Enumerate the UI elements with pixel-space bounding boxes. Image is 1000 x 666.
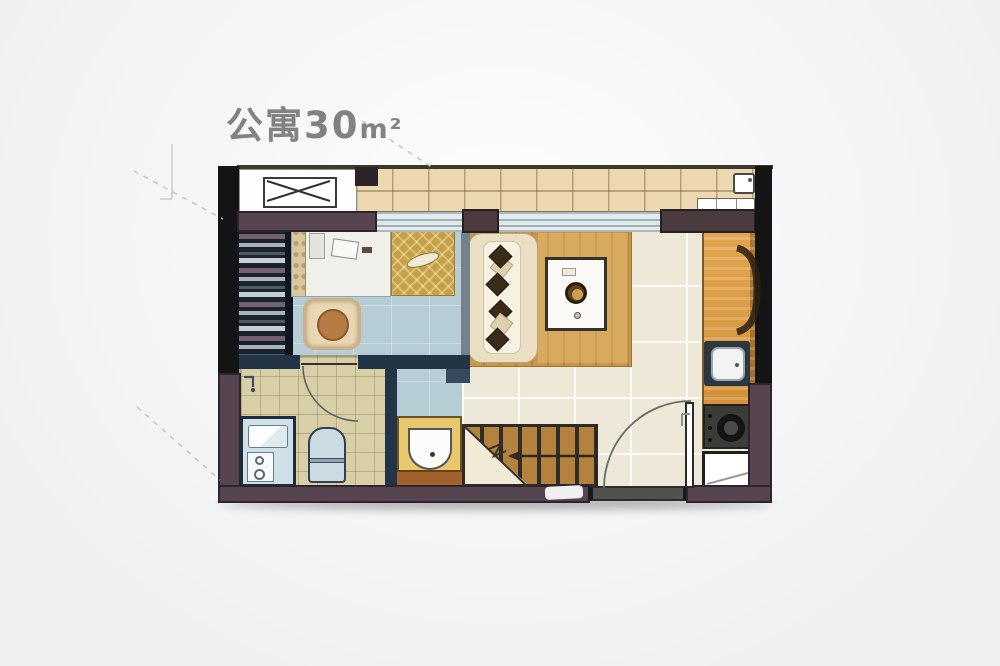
toilet-seat-line bbox=[310, 458, 344, 463]
vanity-basin bbox=[408, 428, 452, 470]
plate-food bbox=[572, 289, 583, 300]
rug-leaf-ornament bbox=[405, 249, 441, 271]
sofa bbox=[468, 233, 538, 363]
stove-knob bbox=[708, 438, 712, 442]
basin-drain bbox=[430, 452, 435, 457]
left-exterior-wall-lower bbox=[218, 373, 241, 503]
right-exterior-wall-upper bbox=[755, 166, 772, 385]
ac-unit-box bbox=[263, 177, 337, 208]
stove-knob bbox=[708, 426, 712, 430]
area-unit-label: m² bbox=[360, 114, 404, 145]
projection-dash-bottom-left bbox=[137, 407, 220, 480]
bed-deco-item bbox=[362, 247, 372, 253]
wardrobe bbox=[239, 224, 293, 362]
coffee-table-cup bbox=[574, 312, 581, 319]
entry-door-leaf bbox=[685, 402, 694, 488]
bottom-wall-left bbox=[218, 485, 590, 503]
cabinet-knob-panel bbox=[247, 452, 274, 482]
ac-platform-niche bbox=[239, 169, 357, 213]
kitchen-sink bbox=[711, 347, 745, 381]
coffee-table-plate bbox=[565, 282, 587, 304]
vanity-counter bbox=[397, 416, 462, 487]
sink-drain bbox=[735, 363, 739, 367]
bedroom-living-divider-wall bbox=[461, 229, 470, 369]
armchair bbox=[303, 298, 361, 350]
cabinet-knob bbox=[255, 456, 264, 465]
projection-dash-top-left bbox=[134, 171, 223, 219]
kitchen-stove bbox=[703, 404, 750, 449]
bed bbox=[291, 226, 391, 297]
bedroom-top-wall bbox=[237, 211, 377, 232]
appliance-knob bbox=[748, 178, 752, 182]
page-title: 公寓30m² bbox=[226, 106, 403, 147]
bed-tray bbox=[331, 238, 359, 259]
stove-knob bbox=[708, 414, 712, 418]
bathroom-cabinet-unit bbox=[240, 416, 296, 487]
bathroom-wall-step bbox=[446, 369, 470, 383]
coffee-table bbox=[545, 257, 607, 331]
bathroom-wall-left bbox=[239, 355, 300, 369]
bathroom-wall-side bbox=[385, 369, 397, 488]
coffee-table-book bbox=[562, 268, 576, 276]
cabinet-sink-top bbox=[248, 425, 288, 448]
bathroom-wall-right bbox=[358, 355, 470, 369]
window-mullion-block bbox=[462, 209, 499, 233]
left-exterior-wall-upper bbox=[218, 166, 239, 375]
toilet bbox=[308, 427, 346, 483]
living-window-band bbox=[377, 212, 662, 232]
bed-headboard bbox=[292, 227, 306, 296]
armchair-cushion bbox=[317, 309, 349, 341]
gold-patterned-rug bbox=[391, 227, 455, 296]
entry-threshold bbox=[588, 486, 688, 501]
balcony-appliance bbox=[733, 173, 755, 194]
page-title-text: 公寓30 bbox=[226, 104, 360, 147]
wall-paint-smudge bbox=[545, 485, 584, 500]
cabinet-knob bbox=[254, 469, 265, 480]
bed-pillow bbox=[309, 233, 325, 259]
stove-burner-ring bbox=[724, 421, 738, 435]
bottom-wall-right bbox=[686, 485, 772, 503]
top-right-wall bbox=[660, 209, 756, 233]
reference-line bbox=[160, 144, 172, 199]
stove-burner bbox=[717, 414, 745, 442]
balcony-floor bbox=[356, 169, 756, 213]
wall-notch bbox=[355, 167, 378, 186]
